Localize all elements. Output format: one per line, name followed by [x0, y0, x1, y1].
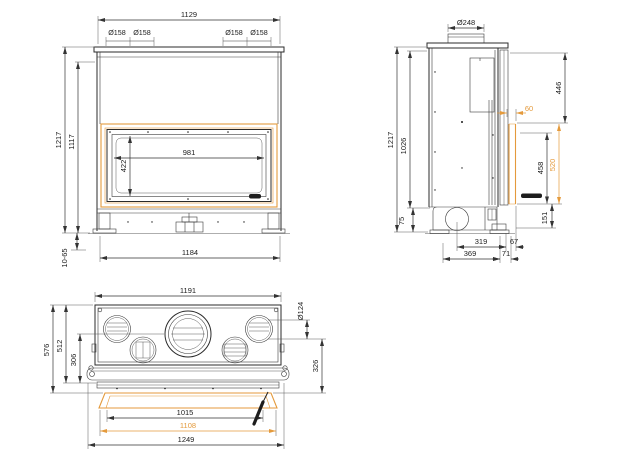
side-dimensions: Ø248 1217 1026 75 446 60 458 520 151 319 — [386, 18, 568, 263]
dim-plan-side-depth: 326 — [311, 360, 320, 373]
dim-side-frame-height: 520 — [548, 159, 557, 172]
dim-plan-outlet-dia: Ø124 — [296, 302, 305, 320]
dim-front-flue-left-2: Ø158 — [133, 28, 151, 37]
dim-side-base-front-height: 151 — [540, 212, 549, 225]
plan-front-bars — [87, 366, 289, 390]
dim-side-height-total: 1217 — [386, 132, 395, 149]
dim-side-base-depth: 369 — [464, 249, 477, 258]
dim-front-feet-range: 10-65 — [60, 248, 69, 267]
dim-side-height-body: 1026 — [399, 138, 408, 155]
dim-side-frame-offset: 60 — [525, 104, 533, 113]
dim-plan-body-width: 1191 — [180, 286, 196, 295]
dim-side-top-to-frame: 446 — [554, 82, 563, 95]
dim-front-glass-width: 981 — [183, 148, 196, 157]
dim-front-flue-left-1: Ø158 — [108, 28, 126, 37]
side-base — [425, 207, 515, 234]
dim-side-flue-to-front: 319 — [475, 237, 488, 246]
technical-drawing-page: 1129 Ø158 Ø158 Ø158 Ø158 1217 1117 981 4… — [0, 0, 624, 460]
plan-flue-circle — [165, 311, 211, 357]
front-door-frame — [107, 130, 271, 202]
dim-front-flue-right-2: Ø158 — [250, 28, 268, 37]
front-body-outline — [94, 47, 284, 231]
plan-view: 1191 Ø124 326 576 512 306 1015 1108 1249 — [42, 286, 326, 449]
dim-side-base-rear-height: 75 — [397, 217, 406, 225]
dim-side-front-lip: 67 — [510, 237, 518, 246]
plan-outlet-circles — [104, 316, 273, 364]
dim-front-glass-height: 422 — [119, 160, 128, 173]
side-view: Ø248 1217 1026 75 446 60 458 520 151 319 — [386, 18, 568, 263]
dim-plan-frame-width: 1108 — [180, 421, 196, 430]
front-base — [88, 209, 290, 234]
front-door-handle — [249, 194, 261, 199]
plan-dimensions: 1191 Ø124 326 576 512 306 1015 1108 1249 — [42, 286, 326, 449]
dim-front-flue-right-1: Ø158 — [225, 28, 243, 37]
side-body-outline — [427, 34, 508, 207]
dim-plan-frame-inner-width: 1015 — [177, 408, 194, 417]
dim-plan-depth-total: 576 — [42, 344, 51, 357]
fireplace-technical-drawing: 1129 Ø158 Ø158 Ø158 Ø158 1217 1117 981 4… — [0, 0, 624, 460]
dim-side-frame-depth: 71 — [502, 249, 510, 258]
dim-front-base-width: 1184 — [182, 248, 198, 257]
side-door-handle — [521, 194, 542, 199]
plan-frame-face — [99, 393, 277, 408]
dim-front-height-body: 1117 — [67, 134, 76, 150]
dim-plan-flue-to-front: 306 — [69, 354, 78, 367]
dim-plan-total-width: 1249 — [178, 435, 195, 444]
front-dimensions: 1129 Ø158 Ø158 Ø158 Ø158 1217 1117 981 4… — [54, 10, 280, 268]
plan-body-outline — [92, 305, 284, 365]
side-door-frame — [509, 124, 516, 204]
front-view: 1129 Ø158 Ø158 Ø158 Ø158 1217 1117 981 4… — [54, 10, 290, 268]
dim-front-top-width: 1129 — [181, 10, 197, 19]
dim-plan-depth-body: 512 — [55, 340, 64, 353]
dim-side-flue-dia: Ø248 — [457, 18, 475, 27]
dim-front-height-total: 1217 — [54, 132, 63, 149]
dim-side-door-height: 458 — [536, 162, 545, 175]
